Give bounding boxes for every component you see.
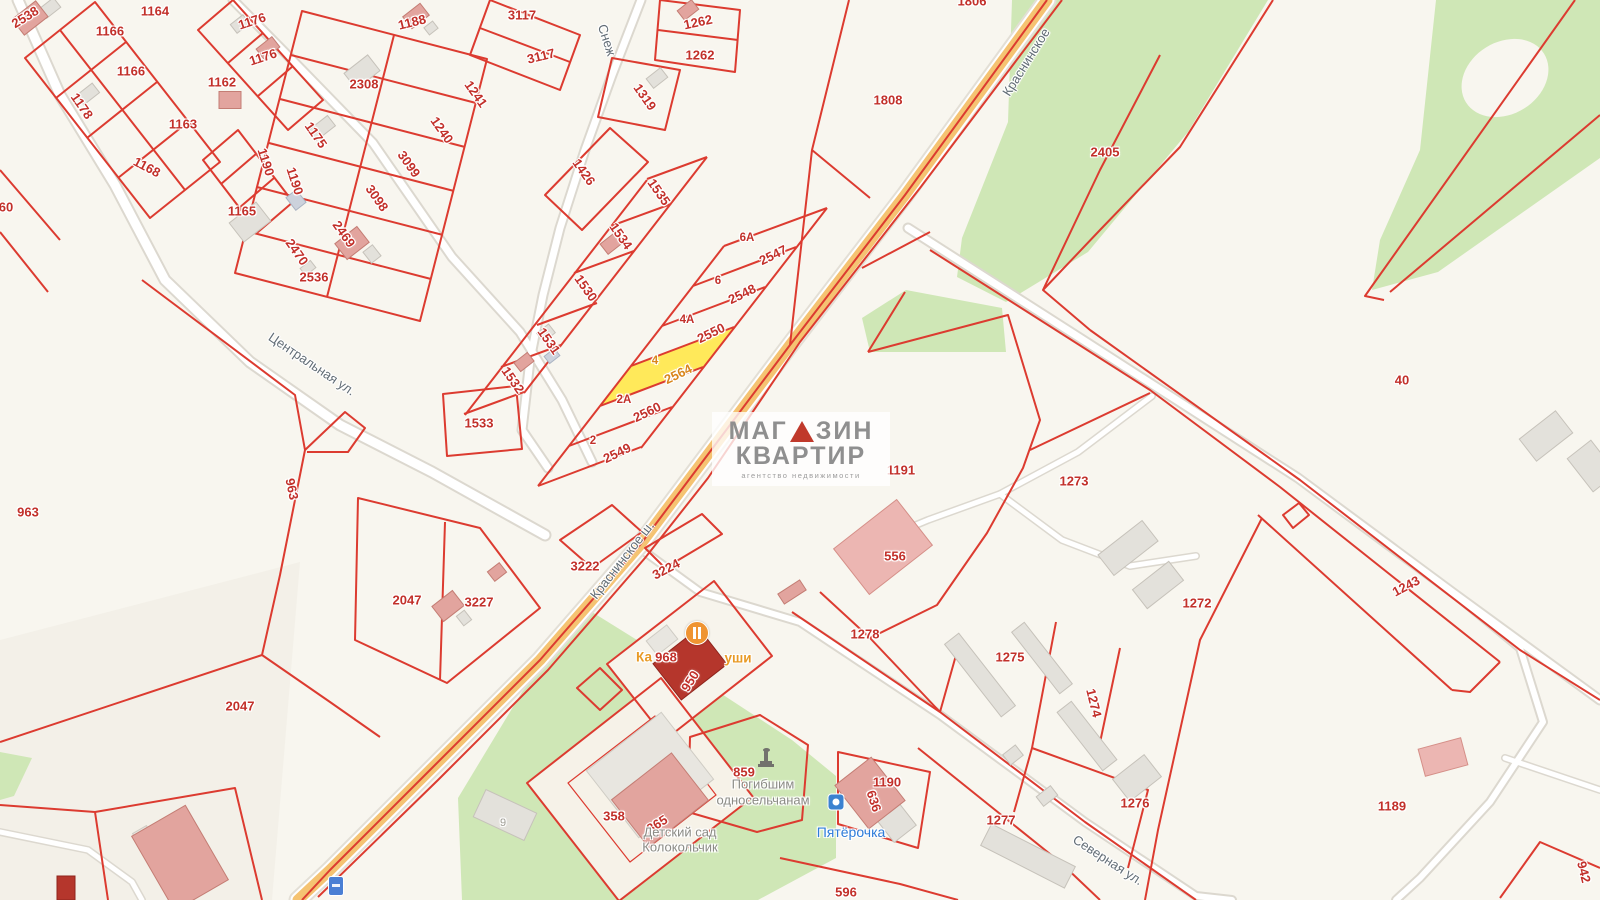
pyaterochka-icon[interactable] — [828, 794, 845, 811]
watermark: МАГ ЗИН КВАРТИР агентство недвижимости — [712, 412, 890, 486]
watermark-line1: МАГ ЗИН — [729, 419, 874, 444]
watermark-line3: агентство недвижимости — [741, 471, 860, 480]
watermark-text-right: ЗИН — [816, 419, 874, 444]
route-shield-icon — [328, 876, 344, 896]
watermark-text-left: МАГ — [729, 419, 788, 444]
memorial-icon-base2 — [758, 764, 774, 767]
cafe-icon[interactable] — [685, 621, 709, 645]
watermark-triangle-icon — [790, 421, 814, 442]
memorial-icon[interactable] — [758, 748, 774, 768]
memorial-icon-column — [764, 750, 768, 761]
map-canvas[interactable]: 2538116411661166117611761162117811631168… — [0, 0, 1600, 900]
watermark-line2: КВАРТИР — [736, 444, 866, 469]
